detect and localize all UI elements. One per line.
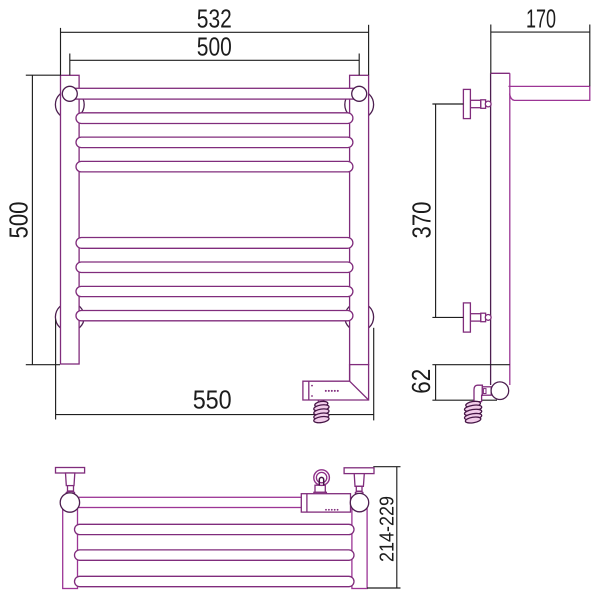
svg-text:170: 170 <box>526 3 556 33</box>
svg-text:500: 500 <box>4 202 34 239</box>
svg-text:214-229: 214-229 <box>377 496 399 562</box>
svg-text:62: 62 <box>406 369 436 394</box>
svg-text:532: 532 <box>197 4 232 34</box>
svg-text:550: 550 <box>193 385 232 415</box>
svg-text:500: 500 <box>197 31 232 61</box>
svg-text:370: 370 <box>407 202 437 239</box>
